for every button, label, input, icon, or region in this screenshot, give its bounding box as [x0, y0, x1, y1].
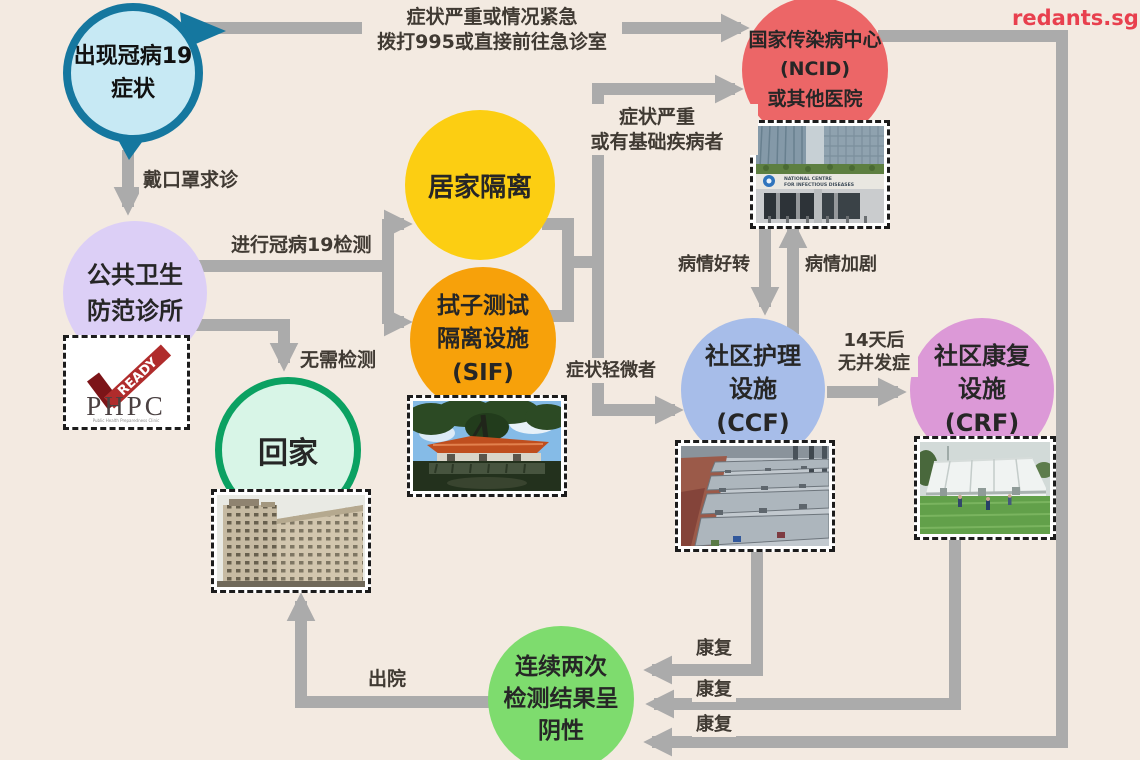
ccf-photo [675, 440, 835, 552]
edge-label-recovered-crf: 康复 [692, 677, 736, 702]
edge-label-mask: 戴口罩求诊 [139, 167, 242, 194]
arrow-phpc-to-home [194, 325, 284, 363]
node-home-quarantine: 居家隔离 [405, 110, 555, 260]
edge-label-severe: 症状严重 或有基础疾病者 [556, 104, 758, 155]
phpc-logo: READY PHPC Public Health Preparedness Cl… [63, 335, 190, 430]
phpc-subtitle-text: Public Health Preparedness Clinic [93, 418, 160, 423]
node-symptom: 出现冠病19 症状 [63, 3, 203, 143]
edge-label-discharged: 出院 [364, 666, 410, 693]
watermark-redants: redants.sg [1008, 4, 1140, 33]
hdb-photo [211, 489, 371, 593]
node-sif: 拭子测试 隔离设施 (SIF) [410, 267, 556, 413]
edge-label-no-test: 无需检测 [296, 347, 380, 374]
node-negative-tests: 连续两次 检测结果呈 阴性 [488, 626, 634, 760]
edge-label-mild: 症状轻微者 [562, 358, 660, 383]
ncid-sign-line1: NATIONAL CENTRE [784, 176, 832, 182]
ncid-sign-line2: FOR INFECTIOUS DISEASES [784, 182, 854, 188]
edge-label-recovered-ccf: 康复 [692, 636, 736, 661]
edge-label-worsening: 病情加剧 [801, 252, 881, 277]
ncid-photo: NATIONAL CENTRE FOR INFECTIOUS DISEASES [750, 120, 890, 229]
crf-photo [914, 436, 1056, 540]
sif-photo [407, 395, 567, 497]
edge-label-covid-test: 进行冠病19检测 [227, 232, 375, 259]
edge-label-improving: 病情好转 [674, 252, 754, 277]
flowchart-canvas: 出现冠病19 症状 公共卫生 防范诊所 居家隔离 拭子测试 隔离设施 (SIF)… [0, 0, 1140, 760]
phpc-name-text: PHPC [86, 391, 166, 421]
edge-label-recovered-ncid: 康复 [692, 712, 736, 737]
edge-label-emergency: 症状严重或情况紧急 拨打995或直接前往急诊室 [362, 4, 622, 55]
edge-label-after-14-days: 14天后 无并发症 [830, 328, 918, 377]
